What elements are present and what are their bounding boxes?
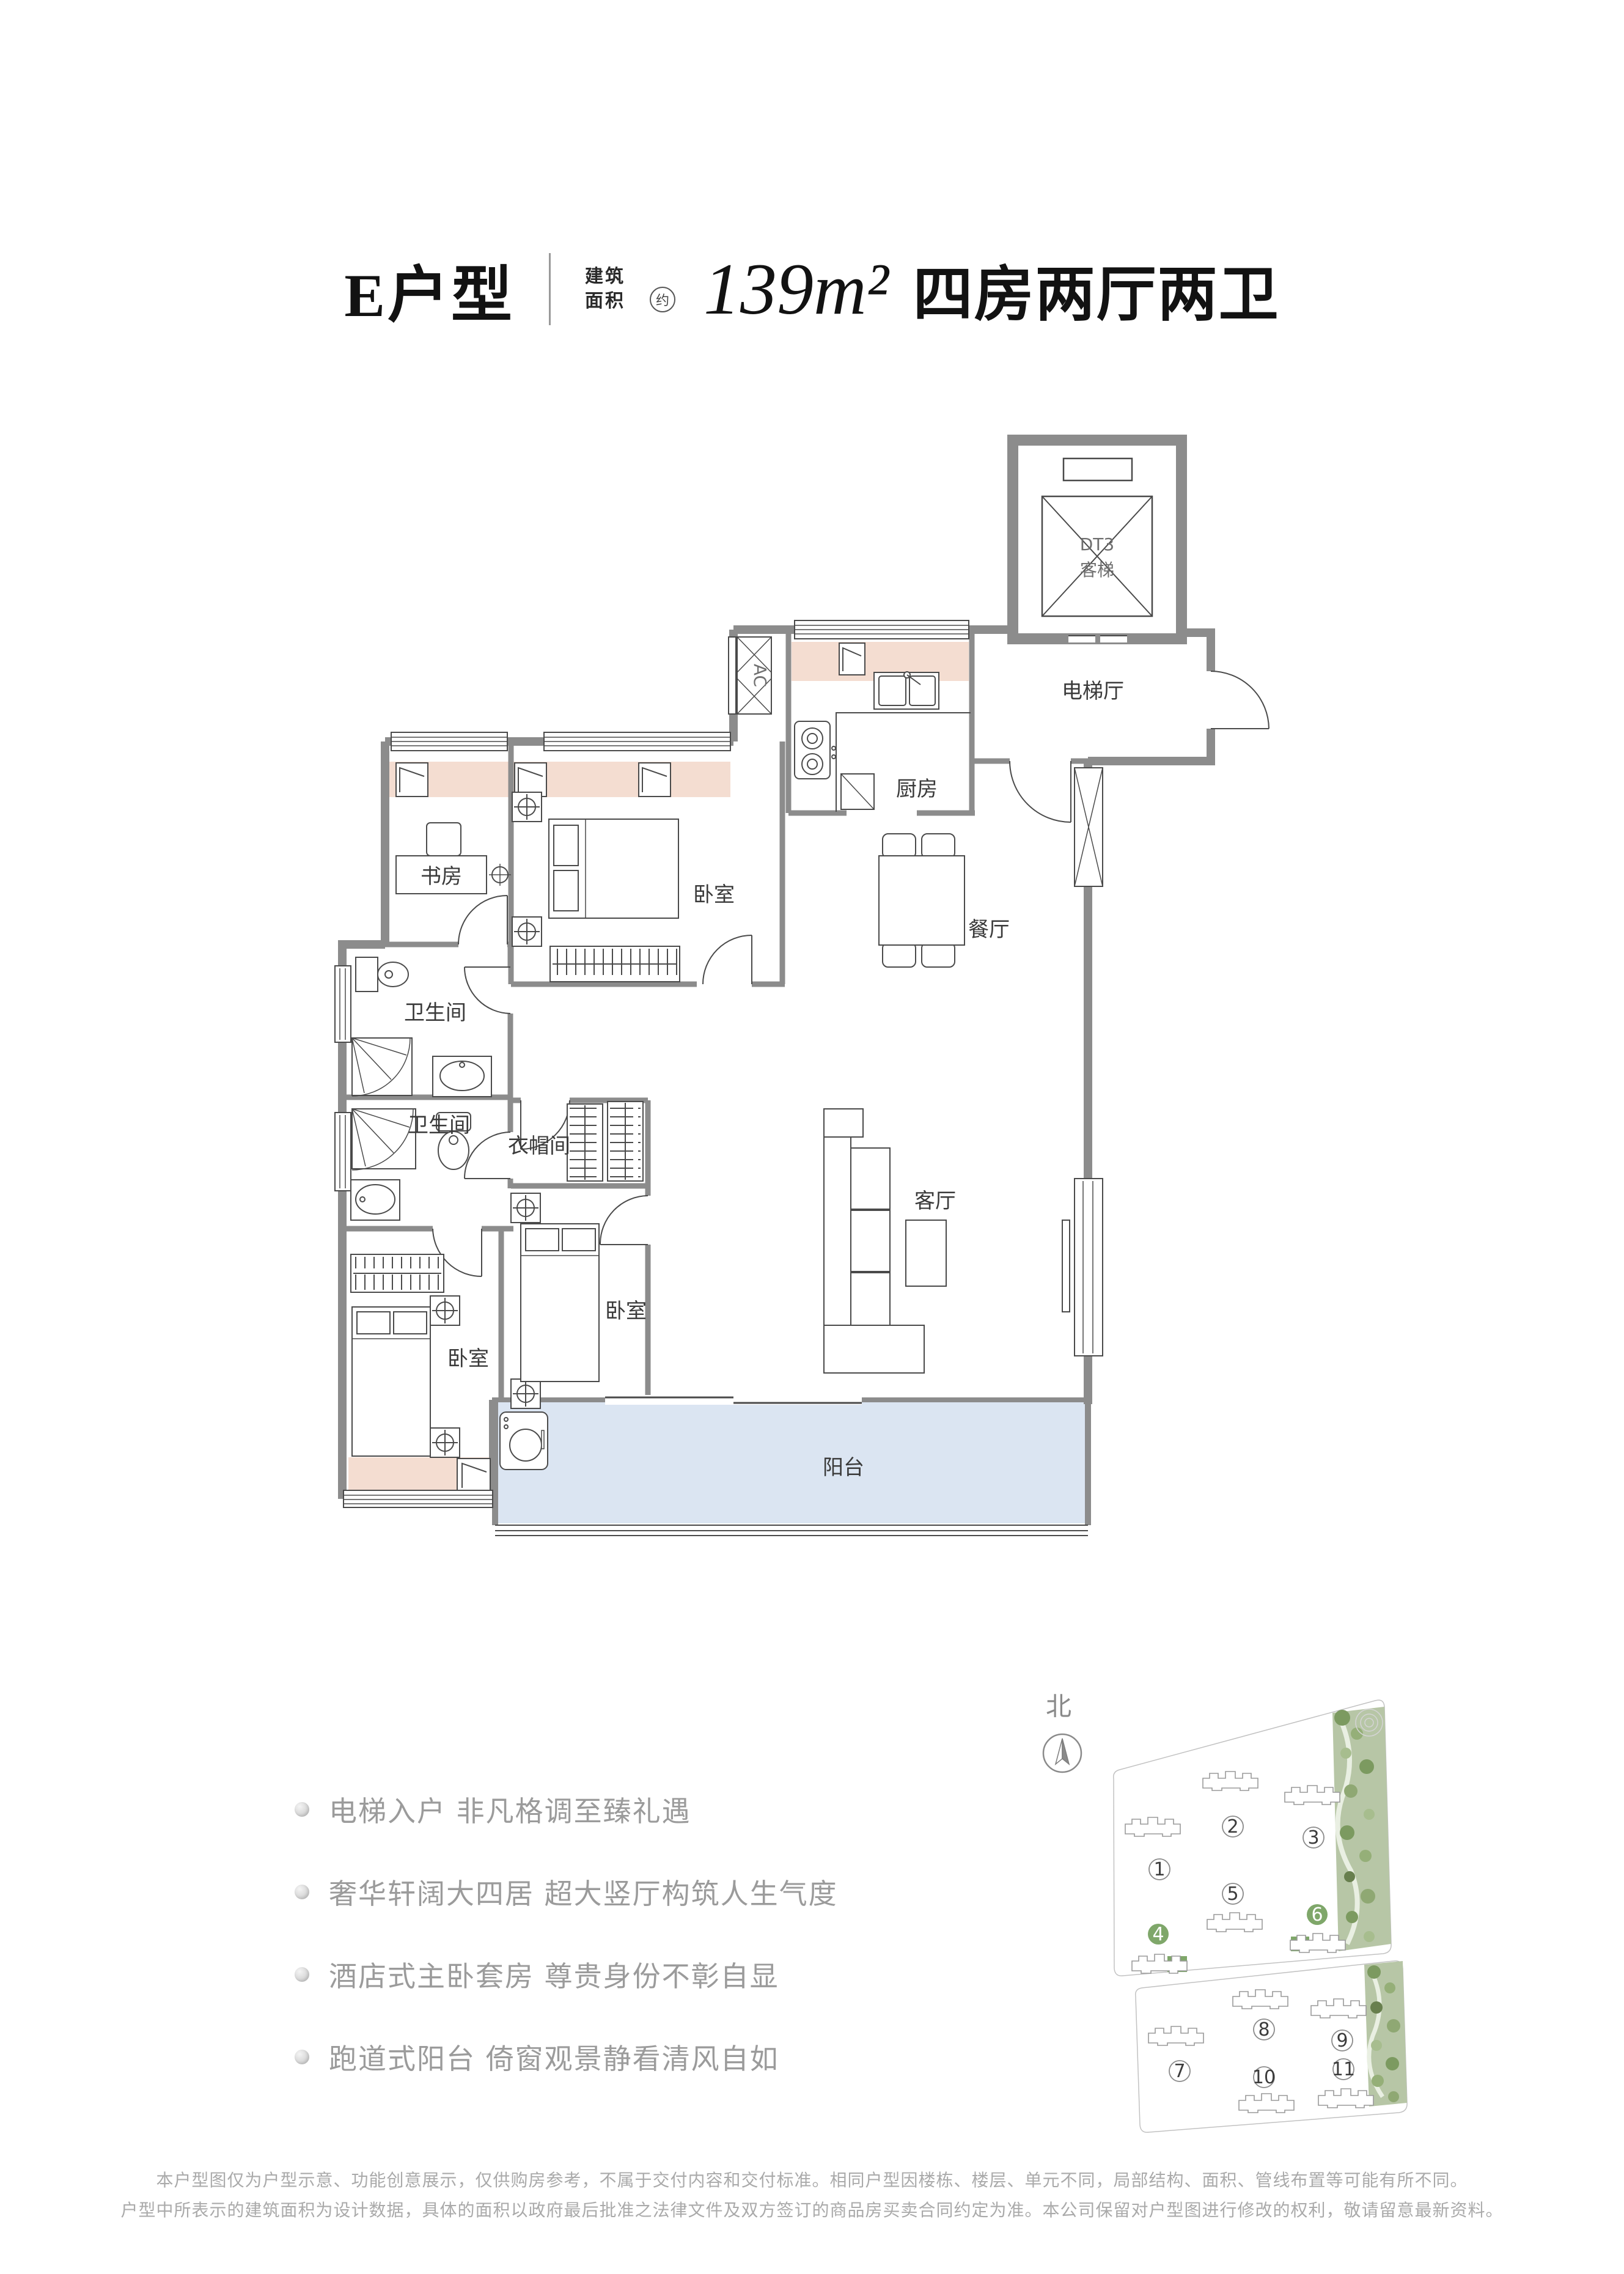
- washing-machine: [500, 1412, 548, 1470]
- bedroom-left-furniture: [351, 1254, 460, 1457]
- bedroom-top-furniture: [512, 792, 680, 982]
- site-parcel-upper: 1 2 3 5 4 6: [1114, 1700, 1391, 1976]
- bathroom-upper-fixtures: [352, 957, 491, 1097]
- feature-text: 奢华轩阔大四居 超大竖厅构筑人生气度: [329, 1872, 838, 1912]
- floor-plan: AC: [306, 428, 1345, 1589]
- building-number-1: 1: [1149, 1859, 1170, 1880]
- building-5: [1207, 1913, 1262, 1932]
- building-3: [1285, 1786, 1340, 1805]
- area-label-line1: 建筑: [585, 265, 625, 290]
- dining-furniture: [879, 834, 964, 967]
- building-number-5: 5: [1222, 1883, 1243, 1905]
- window-bottom-left: [344, 1490, 493, 1507]
- bathroom-upper-label: 卫生间: [404, 1001, 466, 1025]
- svg-text:8: 8: [1258, 2019, 1269, 2040]
- svg-text:10: 10: [1252, 2067, 1276, 2088]
- cloakroom-label: 衣帽间: [508, 1134, 570, 1158]
- svg-text:2: 2: [1227, 1816, 1238, 1838]
- svg-text:7: 7: [1174, 2061, 1185, 2082]
- site-parcel-lower: 7 8 9 10 11: [1136, 1961, 1407, 2133]
- feature-item: 奢华轩阔大四居 超大竖厅构筑人生气度: [295, 1850, 838, 1933]
- building-number-3: 3: [1303, 1827, 1324, 1849]
- study-label: 书房: [421, 864, 462, 889]
- svg-text:6: 6: [1311, 1904, 1323, 1926]
- bedroom-left-label: 卧室: [447, 1347, 489, 1371]
- kitchen-label: 厨房: [896, 777, 938, 801]
- bullet-dot-icon: [295, 1885, 309, 1899]
- bullet-dot-icon: [295, 1967, 309, 1982]
- elevator-hall-label: 电梯厅: [1062, 679, 1124, 704]
- feature-item: 跑道式阳台 倚窗观景静看清风自如: [295, 2015, 838, 2098]
- north-label: 北: [1046, 1691, 1071, 1721]
- bedroom-middle-label: 卧室: [605, 1299, 647, 1323]
- bedroom-middle-furniture: [511, 1193, 599, 1408]
- building-number-9: 9: [1332, 2030, 1353, 2051]
- layout-description: 四房两厅两卫: [913, 246, 1280, 333]
- feature-item: 酒店式主卧套房 尊贵身份不彰自显: [295, 1933, 838, 2015]
- bullet-dot-icon: [295, 2050, 309, 2064]
- bedroom-top-label: 卧室: [693, 883, 735, 907]
- svg-text:3: 3: [1307, 1827, 1319, 1849]
- bathroom-lower-label: 卫生间: [408, 1113, 470, 1138]
- shaft-x-window: [1075, 768, 1103, 886]
- unit-type-name: E户型: [344, 245, 515, 334]
- balcony-floor: [495, 1401, 1088, 1523]
- svg-text:5: 5: [1227, 1883, 1238, 1905]
- building-1: [1125, 1817, 1180, 1836]
- cloakroom-wardrobes: [567, 1102, 643, 1181]
- area-value: 139m²: [704, 247, 889, 331]
- area-label: 建筑 面积: [585, 265, 625, 314]
- title-divider: [549, 253, 551, 325]
- compass-icon: [1043, 1734, 1081, 1772]
- disclaimer-line2: 户型中所表示的建筑面积为设计数据，具体的面积以政府最后批准之法律文件及双方签订的…: [0, 2195, 1624, 2225]
- building-number-10: 10: [1252, 2067, 1276, 2088]
- page-title: E户型 建筑 面积 约 139m² 四房两厅两卫: [0, 237, 1624, 341]
- bullet-dot-icon: [295, 1802, 309, 1817]
- disclaimer-line1: 本户型图仅为户型示意、功能创意展示，仅供购房参考，不属于交付内容和交付标准。相同…: [0, 2165, 1624, 2195]
- building-10: [1239, 2094, 1294, 2113]
- area-label-line2: 面积: [585, 289, 625, 314]
- building-11: [1318, 2089, 1373, 2108]
- building-6: [1290, 1934, 1345, 1952]
- elevator-label-line1: DT3: [1080, 534, 1114, 554]
- feature-text: 酒店式主卧套房 尊贵身份不彰自显: [329, 1954, 779, 1995]
- svg-text:11: 11: [1332, 2059, 1355, 2080]
- building-number-8: 8: [1254, 2019, 1274, 2040]
- balcony-label: 阳台: [823, 1455, 864, 1480]
- building-number-7: 7: [1169, 2061, 1190, 2082]
- svg-text:4: 4: [1152, 1924, 1164, 1945]
- feature-item: 电梯入户 非凡格调至臻礼遇: [295, 1768, 838, 1850]
- ac-unit: AC: [729, 637, 771, 714]
- building-number-2: 2: [1222, 1816, 1243, 1838]
- building-7: [1148, 2026, 1203, 2045]
- building-2: [1203, 1772, 1258, 1790]
- svg-text:1: 1: [1153, 1859, 1165, 1880]
- building-9: [1311, 1999, 1366, 2018]
- svg-text:9: 9: [1336, 2030, 1348, 2051]
- building-number-11: 11: [1332, 2059, 1355, 2080]
- disclaimer: 本户型图仅为户型示意、功能创意展示，仅供购房参考，不属于交付内容和交付标准。相同…: [0, 2165, 1624, 2225]
- living-furniture: [824, 1109, 1070, 1373]
- approx-circle-badge: 约: [650, 287, 675, 312]
- ac-label: AC: [750, 664, 770, 687]
- balcony-sliding-door: [605, 1395, 862, 1405]
- feature-list: 电梯入户 非凡格调至臻礼遇 奢华轩阔大四居 超大竖厅构筑人生气度 酒店式主卧套房…: [295, 1768, 838, 2098]
- window-kitchen-wing: [795, 620, 969, 639]
- living-label: 客厅: [914, 1189, 956, 1213]
- landscape-strip-lower: [1364, 1961, 1407, 2107]
- building-8: [1233, 1990, 1288, 2009]
- elevator-label-line2: 客梯: [1080, 560, 1114, 580]
- site-plan: 北: [1027, 1675, 1442, 2146]
- window-right-lower: [1075, 1179, 1103, 1356]
- feature-text: 电梯入户 非凡格调至臻礼遇: [329, 1789, 691, 1830]
- feature-text: 跑道式阳台 倚窗观景静看清风自如: [329, 2037, 779, 2077]
- building-4: [1132, 1954, 1187, 1973]
- window-top-study: [391, 732, 730, 751]
- balcony-railing: [495, 1525, 1088, 1536]
- kitchen-fixtures: [795, 672, 971, 812]
- dining-label: 餐厅: [968, 918, 1010, 942]
